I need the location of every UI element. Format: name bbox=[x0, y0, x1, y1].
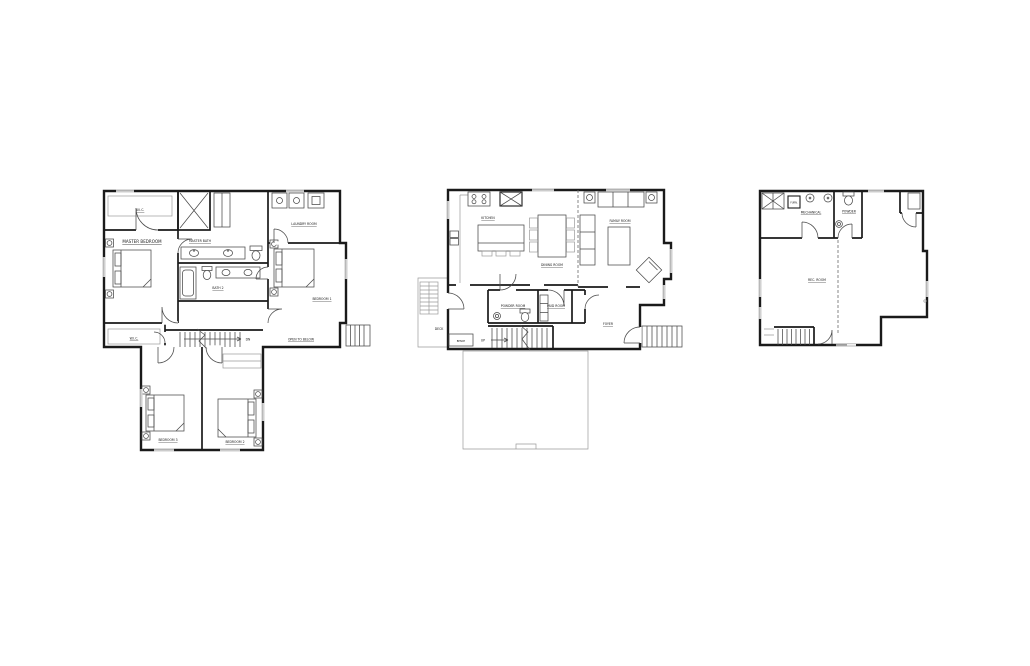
deck-label: DECK bbox=[435, 327, 444, 331]
sectional-sofa-icon bbox=[580, 215, 595, 265]
toilet-icon bbox=[250, 246, 262, 260]
entry-steps-icon bbox=[642, 326, 682, 347]
bedroom-1-label: BEDROOM 1 bbox=[312, 297, 331, 301]
interior-walls bbox=[448, 285, 640, 349]
foyer: FOYER bbox=[603, 322, 682, 347]
basement-plan: FURN. MECHANICAL POWDER bbox=[750, 183, 940, 363]
powder-label: POWDER bbox=[842, 210, 857, 214]
bed-icon bbox=[113, 250, 151, 287]
bedroom-2: BEDROOM 2 bbox=[218, 354, 262, 446]
furnace-label: FURN. bbox=[790, 201, 798, 204]
powder-room-label: POWDER ROOM bbox=[501, 304, 526, 308]
sofa-icon bbox=[598, 192, 644, 207]
dining-room-label: DINING ROOM bbox=[541, 263, 563, 267]
bedroom-3-label: BEDROOM 3 bbox=[158, 438, 177, 442]
furnace-icon: FURN. bbox=[788, 196, 800, 208]
master-bedroom: MASTER BEDROOM bbox=[106, 239, 163, 298]
bed-icon bbox=[146, 395, 184, 431]
upper-floor-drawing: W.I.C. MASTER BEDROOM MASTER BATH bbox=[102, 183, 372, 468]
family-room: FAMILY ROOM bbox=[580, 192, 662, 283]
bedroom-2-label: BEDROOM 2 bbox=[225, 440, 244, 444]
mud-room-label: MUD ROOM bbox=[547, 304, 565, 308]
storage-closet-icon bbox=[762, 193, 784, 209]
open-to-below-label: OPEN TO BELOW bbox=[288, 338, 314, 342]
wic-top-label: W.I.C. bbox=[136, 208, 145, 212]
pedestal-sink-icon bbox=[836, 221, 843, 228]
bench-label: BENCH bbox=[457, 340, 466, 343]
linen-closet bbox=[214, 193, 230, 227]
kitchen-sink-icon bbox=[450, 231, 459, 245]
coffee-table-icon bbox=[608, 227, 630, 265]
exterior-wall bbox=[448, 190, 671, 349]
rec-room-label: REC. ROOM bbox=[808, 278, 826, 282]
bedroom-1: BEDROOM 1 bbox=[270, 240, 332, 301]
kitchen-island-icon bbox=[478, 225, 524, 256]
locker-icon bbox=[540, 295, 548, 321]
main-floor-drawing: DECK bbox=[412, 183, 692, 473]
washer-icon bbox=[272, 193, 287, 208]
interior-walls bbox=[760, 191, 923, 345]
bath-2-label: BATH 2 bbox=[212, 286, 223, 290]
storage-nook bbox=[908, 193, 920, 209]
bed-icon bbox=[274, 249, 314, 287]
master-bath-label: MASTER BATH bbox=[189, 239, 212, 243]
door-swings bbox=[802, 211, 916, 239]
outline-below bbox=[463, 351, 588, 449]
laundry-room: LAUNDRY ROOM bbox=[272, 193, 324, 226]
sliding-door bbox=[836, 343, 856, 347]
laundry-sink-icon bbox=[308, 193, 324, 208]
stairs-icon: UP bbox=[481, 325, 547, 350]
dining-table-icon bbox=[530, 215, 575, 257]
dining-room: DINING ROOM bbox=[530, 215, 575, 267]
bed-icon bbox=[218, 399, 256, 437]
nightstand-icon bbox=[106, 239, 114, 298]
vanity-icon bbox=[216, 267, 260, 278]
deck-stairs-icon bbox=[420, 282, 438, 314]
main-floor-plan: DECK bbox=[412, 183, 692, 473]
bench-icon: BENCH bbox=[449, 334, 473, 346]
stairs-dn-label: DN bbox=[246, 338, 251, 342]
counter-icon bbox=[460, 195, 468, 283]
bedroom-3: BEDROOM 3 bbox=[142, 386, 184, 442]
double-vanity-icon bbox=[181, 247, 245, 259]
dryer-icon bbox=[289, 193, 304, 208]
walk-in-closet-top: W.I.C. bbox=[108, 196, 172, 216]
master-bath: MASTER BATH bbox=[181, 239, 262, 260]
powder-room: POWDER bbox=[836, 192, 857, 227]
family-room-label: FAMILY ROOM bbox=[609, 219, 630, 223]
mechanical-room: FURN. MECHANICAL bbox=[762, 193, 832, 215]
bathtub-icon bbox=[180, 267, 196, 299]
water-heater-icon bbox=[806, 194, 832, 202]
deck-area: DECK bbox=[418, 278, 448, 347]
refrigerator-icon bbox=[500, 192, 522, 206]
shower-icon bbox=[178, 191, 210, 230]
range-icon bbox=[468, 192, 490, 206]
closet-icon bbox=[223, 354, 261, 368]
toilet-icon bbox=[202, 267, 212, 280]
stairs-up-label: UP bbox=[481, 339, 485, 343]
upper-floor-plan: W.I.C. MASTER BEDROOM MASTER BATH bbox=[102, 183, 372, 468]
laundry-room-label: LAUNDRY ROOM bbox=[291, 222, 317, 226]
kitchen-label: KITCHEN bbox=[481, 216, 495, 220]
walk-in-closet-bottom: W.I.C. bbox=[108, 329, 160, 344]
wic-bottom-label: W.I.C. bbox=[130, 337, 139, 341]
exterior-steps-icon bbox=[346, 325, 370, 346]
armchair-icon bbox=[636, 257, 661, 282]
pedestal-sink-icon bbox=[494, 313, 501, 320]
toilet-icon bbox=[843, 192, 854, 205]
bath-2: BATH 2 bbox=[180, 267, 260, 300]
side-table-icon bbox=[584, 192, 657, 203]
kitchen: KITCHEN bbox=[450, 192, 524, 283]
master-bedroom-label: MASTER BEDROOM bbox=[122, 239, 162, 244]
toilet-icon bbox=[520, 309, 530, 322]
powder-room: POWDER ROOM bbox=[494, 304, 531, 322]
rec-room: REC. ROOM bbox=[808, 240, 838, 333]
floor-plan-sheet: W.I.C. MASTER BEDROOM MASTER BATH bbox=[0, 0, 1030, 666]
mud-room: MUD ROOM bbox=[540, 295, 565, 321]
basement-drawing: FURN. MECHANICAL POWDER bbox=[750, 183, 940, 363]
foyer-label: FOYER bbox=[603, 322, 614, 326]
stairs-icon bbox=[764, 329, 832, 345]
mechanical-label: MECHANICAL bbox=[801, 211, 822, 215]
